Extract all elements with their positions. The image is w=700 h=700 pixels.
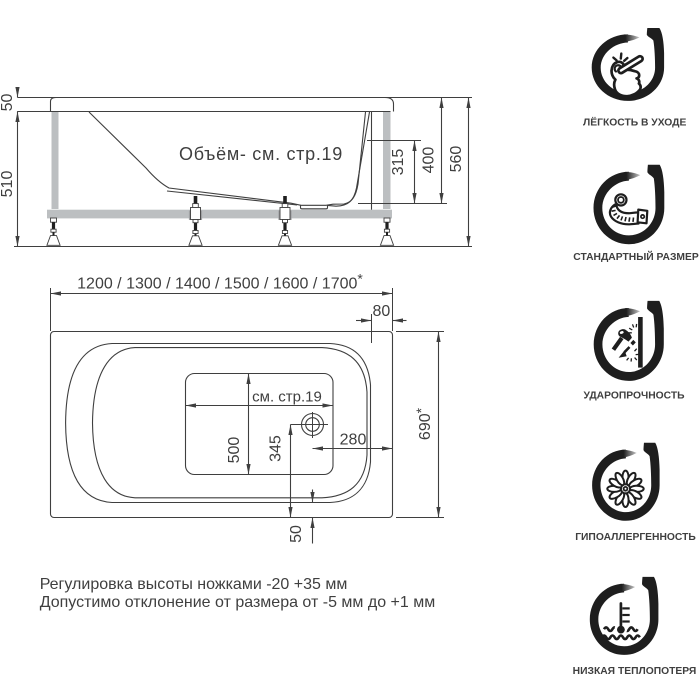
svg-text:СТАНДАРТНЫЙ РАЗМЕР: СТАНДАРТНЫЙ РАЗМЕР (573, 250, 699, 263)
svg-text:ГИПОАЛЛЕРГЕННОСТЬ: ГИПОАЛЛЕРГЕННОСТЬ (575, 532, 696, 543)
svg-text:400: 400 (421, 147, 438, 174)
svg-text:Допустимо отклонение от размер: Допустимо отклонение от размера от -5 мм… (40, 594, 436, 611)
svg-text:345: 345 (268, 435, 285, 462)
svg-text:УДАРОПРОЧНОСТЬ: УДАРОПРОЧНОСТЬ (583, 391, 685, 402)
svg-text:80: 80 (373, 303, 391, 320)
svg-text:Объём- см. стр.19: Объём- см. стр.19 (179, 144, 343, 164)
svg-text:690*: 690* (413, 407, 434, 440)
svg-text:ЛЁГКОСТЬ В УХОДЕ: ЛЁГКОСТЬ В УХОДЕ (583, 116, 686, 129)
svg-text:500: 500 (226, 437, 243, 464)
svg-text:510: 510 (0, 171, 16, 198)
svg-text:см. стр.19: см. стр.19 (252, 389, 322, 406)
svg-text:НИЗКАЯ ТЕПЛОПОТЕРЯ: НИЗКАЯ ТЕПЛОПОТЕРЯ (573, 666, 697, 677)
svg-text:1200 / 1300 / 1400 / 1500 / 16: 1200 / 1300 / 1400 / 1500 / 1600 / 1700* (77, 271, 363, 293)
svg-text:Регулировка высоты ножками -20: Регулировка высоты ножками -20 +35 мм (40, 576, 348, 593)
svg-text:280: 280 (340, 432, 367, 449)
svg-text:560: 560 (448, 146, 465, 173)
svg-text:50: 50 (0, 94, 16, 112)
svg-text:315: 315 (390, 149, 407, 176)
svg-text:50: 50 (288, 525, 305, 543)
